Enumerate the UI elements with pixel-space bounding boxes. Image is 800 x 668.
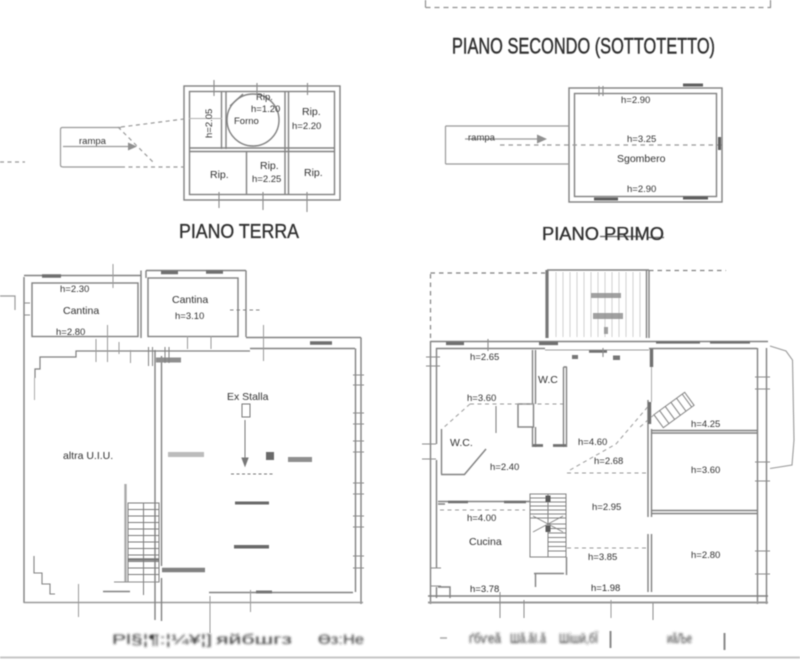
svg-text:h=3.10: h=3.10 — [175, 311, 204, 322]
svg-text:h=2.40: h=2.40 — [490, 462, 519, 473]
svg-text:Cantina: Cantina — [63, 305, 99, 317]
svg-text:Forno: Forno — [234, 116, 259, 127]
svg-text:h=2.90: h=2.90 — [621, 95, 650, 106]
svg-text:Cantina: Cantina — [172, 294, 208, 306]
svg-text:Rip.: Rip. — [260, 160, 279, 172]
svg-text:h=3.25: h=3.25 — [627, 134, 656, 145]
svg-text:иӑЉе: иӑЉе — [667, 631, 692, 646]
svg-text:Sgombero: Sgombero — [617, 153, 666, 165]
svg-text:h=4.00: h=4.00 — [467, 513, 496, 524]
svg-text:Pl§¦¶:¦¼¥¦]: Pl§¦¶:¦¼¥¦] — [112, 632, 212, 647]
svg-text:Rip.: Rip. — [256, 92, 273, 103]
svg-text:h=4.60: h=4.60 — [578, 437, 607, 448]
svg-text:h=3.60: h=3.60 — [467, 393, 496, 404]
svg-text:h=2.30: h=2.30 — [60, 284, 89, 295]
svg-text:Rip.: Rip. — [304, 167, 323, 179]
svg-text:Rip.: Rip. — [302, 106, 321, 118]
svg-text:h=2.95: h=2.95 — [592, 502, 621, 513]
svg-text:rampa: rampa — [468, 133, 496, 144]
svg-text:h=2.80: h=2.80 — [691, 550, 720, 561]
svg-text:W.C.: W.C. — [450, 437, 473, 449]
svg-text:Rip.: Rip. — [210, 169, 229, 181]
svg-text:PIANO SECONDO (SOTTOTETTO): PIANO SECONDO (SOTTOTETTO) — [452, 34, 715, 59]
svg-text:W.C: W.C — [538, 374, 558, 386]
svg-text:h=2.65: h=2.65 — [470, 352, 499, 363]
svg-text:h=3.60: h=3.60 — [691, 465, 720, 476]
svg-text:PIANO TERRA: PIANO TERRA — [179, 221, 300, 243]
svg-text:h=2.05: h=2.05 — [204, 109, 215, 138]
svg-text:rampa: rampa — [79, 136, 107, 147]
svg-text:ґбѵеӑ: ґбѵеӑ — [469, 631, 501, 646]
svg-text:h=2.80: h=2.80 — [56, 327, 85, 338]
svg-text:PIANO PRIMO: PIANO PRIMO — [542, 224, 664, 244]
svg-text:h=2.68: h=2.68 — [594, 456, 623, 467]
svg-text:h=2.90: h=2.90 — [627, 184, 656, 195]
svg-text:h=3.85: h=3.85 — [588, 552, 617, 563]
svg-text:яйбшгз: яйбшгз — [216, 632, 292, 647]
svg-text:Шӑ.ӑІ.ӑ: Шӑ.ӑІ.ӑ — [510, 631, 546, 646]
svg-text:h=2.25: h=2.25 — [252, 174, 281, 185]
svg-text:Шішӣ,бЇ: Шішӣ,бЇ — [559, 631, 598, 646]
svg-text:altra U.I.U.: altra U.I.U. — [63, 450, 113, 462]
svg-text:h=2.20: h=2.20 — [292, 121, 321, 132]
svg-text:h=3.78: h=3.78 — [470, 584, 499, 595]
svg-text:Өз:Не: Өз:Не — [318, 632, 364, 647]
svg-text:h=1.20: h=1.20 — [251, 104, 280, 115]
svg-text:Cucina: Cucina — [469, 536, 502, 548]
svg-text:h=1.98: h=1.98 — [591, 583, 620, 594]
svg-text:Ex Stalla: Ex Stalla — [227, 391, 269, 403]
svg-text:h=4.25: h=4.25 — [691, 419, 720, 430]
